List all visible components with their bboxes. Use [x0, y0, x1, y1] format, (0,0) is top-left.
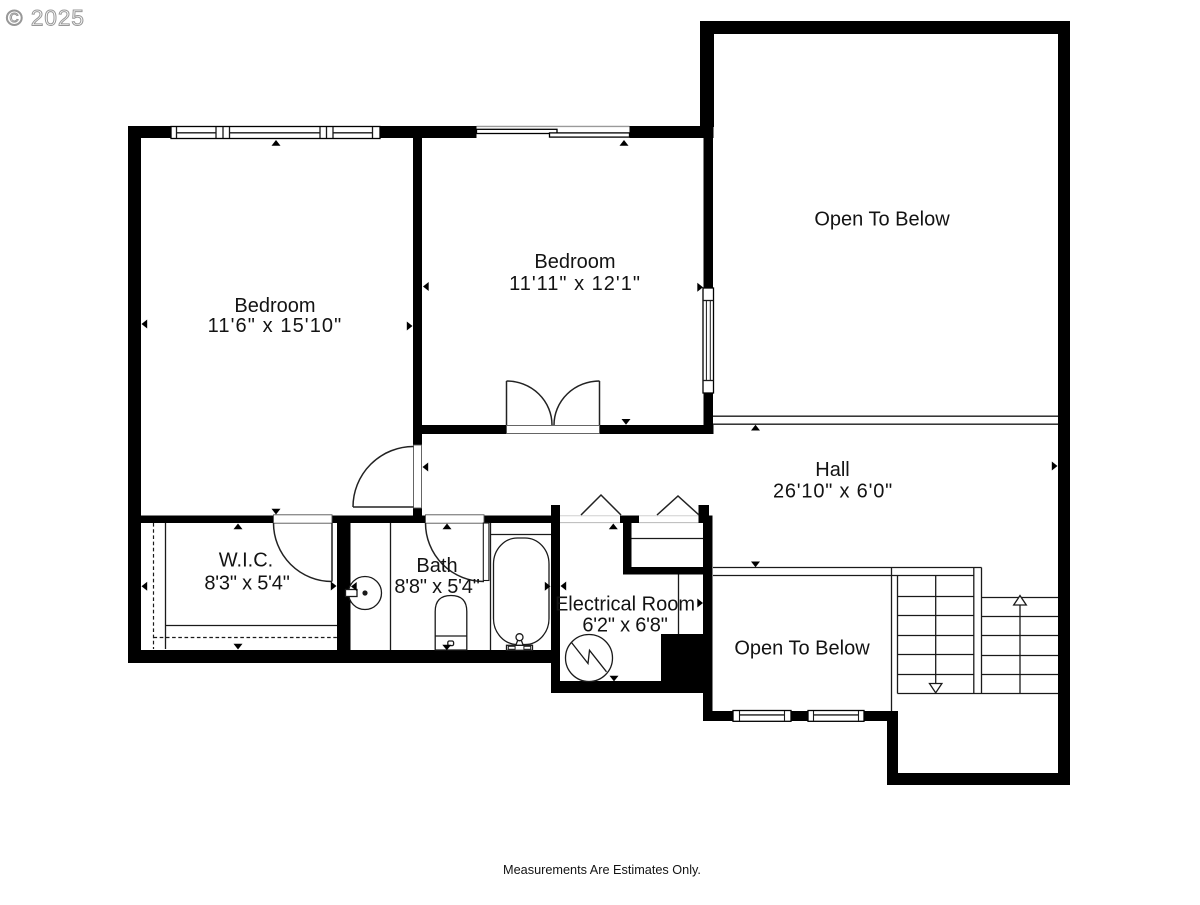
svg-text:Bath: Bath: [416, 555, 457, 577]
svg-text:6'2" x 6'8": 6'2" x 6'8": [582, 615, 667, 637]
svg-text:Electrical Room: Electrical Room: [555, 594, 695, 616]
svg-text:8'8" x 5'4": 8'8" x 5'4": [394, 576, 479, 598]
svg-text:Bedroom: Bedroom: [534, 251, 615, 273]
svg-text:Open To Below: Open To Below: [734, 638, 870, 660]
svg-text:8'3" x 5'4": 8'3" x 5'4": [204, 573, 289, 595]
svg-text:11'11" x 12'1": 11'11" x 12'1": [509, 273, 641, 295]
svg-text:Bedroom: Bedroom: [234, 295, 315, 317]
svg-text:W.I.C.: W.I.C.: [219, 550, 273, 572]
svg-text:Hall: Hall: [815, 459, 849, 481]
svg-text:11'6" x 15'10": 11'6" x 15'10": [208, 315, 343, 337]
svg-text:© 2025: © 2025: [6, 6, 85, 31]
svg-text:Open To Below: Open To Below: [814, 209, 950, 231]
svg-text:Measurements Are Estimates Onl: Measurements Are Estimates Only.: [503, 863, 701, 877]
svg-text:26'10" x 6'0": 26'10" x 6'0": [773, 481, 893, 503]
